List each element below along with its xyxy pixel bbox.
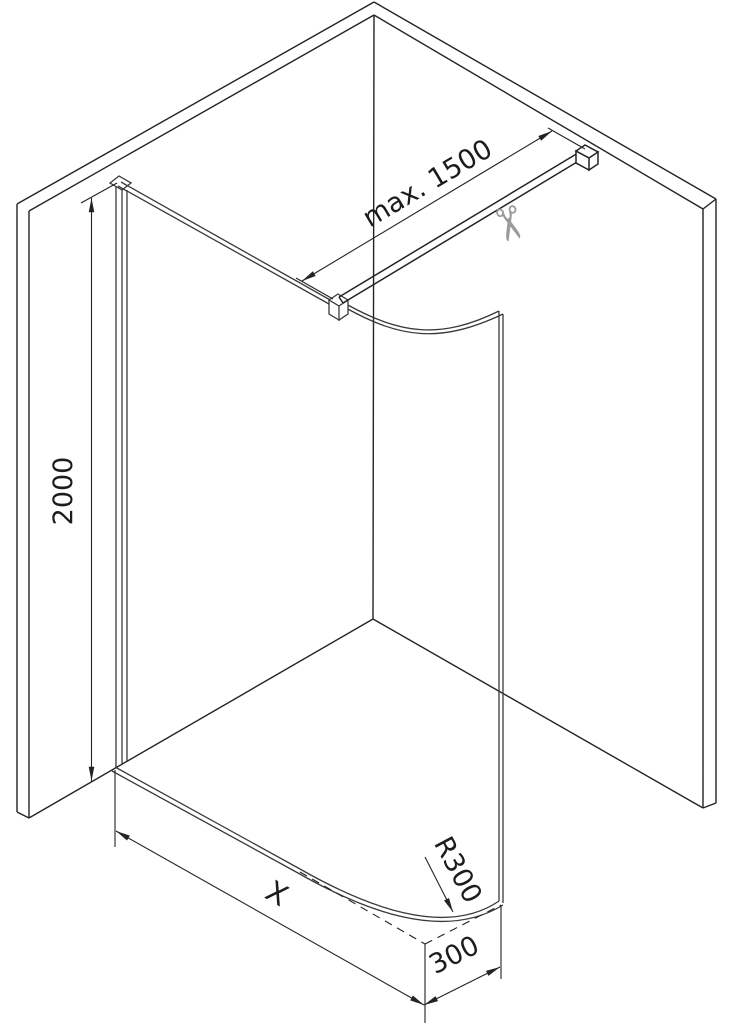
diagram-canvas: ✂ max. 1500 2000 X xyxy=(0,0,732,1024)
shower-technical-drawing: ✂ max. 1500 2000 X xyxy=(0,0,732,1024)
glass-height-label: 2000 xyxy=(48,457,79,526)
drawing-background xyxy=(0,0,732,1024)
